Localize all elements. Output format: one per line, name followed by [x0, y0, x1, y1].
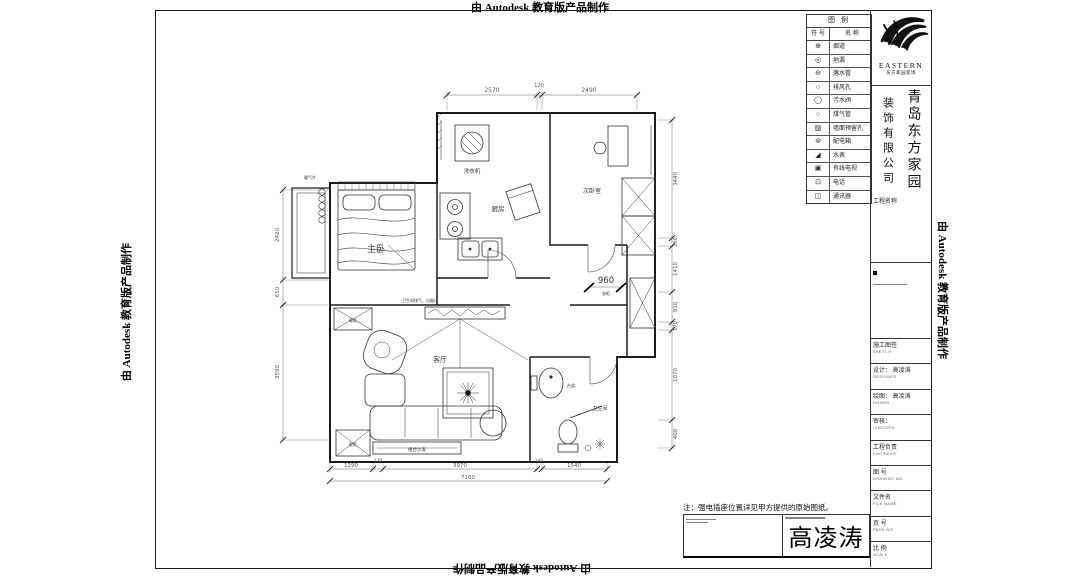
label-sofa: 组合沙发 — [408, 446, 426, 453]
intercom-icon: ◫ — [807, 191, 830, 204]
svg-text:2570: 2570 — [484, 87, 499, 94]
svg-text:140: 140 — [535, 458, 544, 464]
svg-text:2420: 2420 — [275, 228, 281, 242]
desk — [594, 126, 628, 166]
label-wardrobe: 衣柜 — [602, 290, 610, 296]
legend-row: ◢水表 — [807, 150, 871, 164]
radiator — [319, 189, 325, 223]
stamp-square-icon — [873, 271, 877, 275]
room-label-kitchen: 厨房 — [492, 204, 505, 213]
field-engineer: 工程负责ENGINEER — [871, 440, 931, 465]
distribution-box-icon: ⊜ — [807, 136, 830, 149]
label-shoe-bottom: 鞋柜 — [349, 441, 357, 447]
label-basin: 台盆 — [567, 382, 575, 388]
micro-text-bar — [873, 284, 907, 286]
bed — [338, 190, 415, 270]
pillow — [379, 195, 411, 210]
room-label-bedroom2: 次卧室 — [583, 187, 601, 195]
label-shoe-top: 鞋柜 — [349, 317, 357, 323]
washing-machine — [455, 125, 489, 161]
flue-icon: ⊕ — [807, 41, 830, 54]
dimension-labels: 2570 120 2490 3440 200 1410 910 170 1070… — [275, 83, 679, 481]
svg-text:1540: 1540 — [567, 463, 581, 469]
wardrobe-bedroom2 — [622, 178, 655, 255]
socket-note: 注：强电插座位置详见甲方提供的原始图纸。 — [683, 502, 833, 513]
watermark-right: 由 Autodesk 教育版产品制作 — [935, 221, 951, 359]
field-designer: 设计： 高凌涛DESIGNER — [871, 363, 931, 388]
legend-row: ⊖落水管 — [807, 68, 871, 82]
field-drawing-stamp — [871, 262, 931, 338]
svg-text:3440: 3440 — [673, 172, 679, 186]
company-logo: EASTERN 东方家园装饰 — [871, 11, 931, 86]
approval-box-signature: 高凌涛 — [783, 514, 870, 558]
approval-box-left — [683, 514, 783, 558]
floor-plan: 2570 120 2490 3440 200 1410 910 170 1070… — [270, 80, 710, 500]
legend-row: ◫通讯器 — [807, 191, 871, 204]
logo-wordmark: EASTERN — [871, 61, 931, 70]
svg-text:650: 650 — [275, 286, 281, 297]
micro-text-bar — [686, 519, 716, 521]
svg-text:120: 120 — [534, 83, 544, 89]
room-label-living: 客厅 — [433, 355, 447, 364]
floor-drain-icon: ◎ — [807, 55, 830, 68]
cad-sheet: { "watermark": { "text": "由 Autodesk 教育版… — [0, 0, 1074, 576]
stove — [440, 193, 470, 239]
chandelier — [443, 368, 493, 418]
legend-subheader: 符 号 名 称 — [807, 28, 871, 41]
cable-tv-icon: ▣ — [807, 163, 830, 176]
legend-row: ⊡电话 — [807, 177, 871, 191]
room-label-bath: 卫生间 — [592, 405, 607, 412]
room-label-master: 主卧 — [367, 243, 385, 255]
field-checked: 审核：CHECKED — [871, 414, 931, 439]
legend-row: ○煤气管 — [807, 109, 871, 123]
toilet — [558, 420, 578, 452]
kitchen-sink — [458, 238, 502, 260]
field-project-name: 工程名称 — [871, 195, 931, 262]
designer-signature: 高凌涛 — [783, 519, 869, 559]
svg-text:3970: 3970 — [453, 463, 467, 469]
pillow — [343, 195, 375, 210]
watermark-left: 由 Autodesk 教育版产品制作 — [118, 243, 134, 381]
eastern-swoosh-icon — [872, 11, 930, 55]
svg-text:120: 120 — [374, 458, 383, 464]
legend-row: ▨墙面预留孔 — [807, 123, 871, 137]
storage-dim: 960 — [598, 276, 614, 286]
label-washer: 洗衣机 — [464, 167, 481, 175]
svg-text:3590: 3590 — [275, 365, 281, 379]
svg-text:2490: 2490 — [581, 87, 596, 94]
door-arcs — [488, 245, 617, 384]
dimension-lines — [280, 92, 675, 484]
micro-text-bar — [686, 522, 708, 524]
wash-basin — [531, 368, 563, 398]
ceiling-projection-lines — [392, 319, 528, 368]
legend-row: ○排风孔 — [807, 82, 871, 96]
sewage-valve-icon: ◯ — [807, 95, 830, 108]
svg-text:200: 200 — [673, 237, 679, 247]
field-scale: 比 例SCALE — [871, 541, 931, 566]
company-name-col-right: 青岛东方家园 — [903, 89, 923, 197]
field-drawing-no: 图 号DRAWING NO. — [871, 465, 931, 490]
svg-text:1290: 1290 — [344, 463, 358, 469]
title-block-brand: EASTERN 东方家园装饰 装饰有限公司 青岛东方家园 — [870, 11, 931, 195]
gas-pipe-icon: ○ — [807, 109, 830, 122]
field-file-name: 文件名FILE NAME — [871, 490, 931, 515]
legend-col-symbol: 符 号 — [807, 28, 830, 40]
legend-row: ◎地漏 — [807, 55, 871, 69]
field-page-no: 页 号PAGE NO. — [871, 516, 931, 541]
company-name-vertical: 装饰有限公司 青岛东方家园 — [871, 86, 931, 197]
svg-text:910: 910 — [673, 301, 679, 312]
label-vent-note: 卫生间排气、出烟口 — [402, 297, 438, 303]
downpipe-icon: ⊖ — [807, 68, 830, 81]
legend-row: ▣有线电视 — [807, 163, 871, 177]
fridge — [506, 184, 540, 221]
shower-drain — [585, 439, 605, 451]
company-name-col-left: 装饰有限公司 — [880, 97, 896, 197]
svg-text:1070: 1070 — [673, 368, 679, 382]
svg-text:7160: 7160 — [461, 475, 475, 481]
water-meter-icon: ◢ — [807, 150, 830, 163]
vent-hole-icon: ○ — [807, 82, 830, 95]
title-block-fields: 工程名称 施工图签SKETCH 设计： 高凌涛DESIGNER 绘图： 高凌涛D… — [870, 195, 931, 567]
svg-text:170: 170 — [673, 321, 679, 331]
tv-cabinet — [425, 307, 505, 319]
field-sketch: 施工图签SKETCH — [871, 338, 931, 363]
logo-subtitle: 东方家园装饰 — [871, 70, 931, 76]
field-drawn: 绘图： 高凌涛DRAWN — [871, 389, 931, 414]
svg-text:400: 400 — [673, 428, 679, 439]
legend-table: 图 例 符 号 名 称 ⊕烟道 ◎地漏 ⊖落水管 ○排风孔 ◯污水阀 ○煤气管 … — [806, 14, 872, 204]
wall-hole-icon: ▨ — [807, 123, 830, 136]
legend-row: ⊜配电箱 — [807, 136, 871, 150]
hall-wardrobe — [630, 278, 655, 328]
sofa-group — [359, 326, 506, 454]
label-radiator: 暖气片 — [304, 174, 316, 180]
telephone-icon: ⊡ — [807, 177, 830, 190]
svg-text:1410: 1410 — [673, 262, 679, 276]
legend-row: ◯污水阀 — [807, 95, 871, 109]
legend-row: ⊕烟道 — [807, 41, 871, 55]
legend-col-name: 名 称 — [830, 28, 871, 40]
legend-title: 图 例 — [807, 15, 871, 28]
